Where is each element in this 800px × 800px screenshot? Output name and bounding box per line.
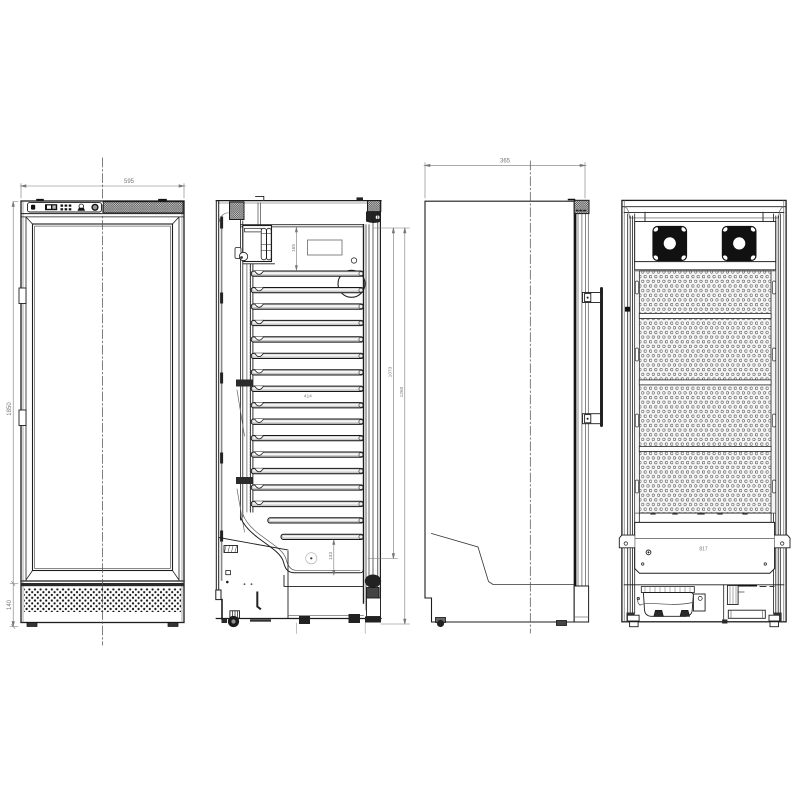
svg-text:414: 414 bbox=[304, 394, 312, 400]
svg-text:595: 595 bbox=[124, 179, 135, 185]
svg-text:817: 817 bbox=[699, 547, 708, 553]
svg-text:1073: 1073 bbox=[387, 366, 393, 377]
svg-text:133: 133 bbox=[328, 552, 334, 560]
svg-text:165: 165 bbox=[291, 244, 297, 252]
svg-text:1850: 1850 bbox=[7, 402, 13, 416]
svg-text:140: 140 bbox=[7, 599, 13, 610]
svg-text:1260: 1260 bbox=[399, 386, 405, 397]
svg-text:365: 365 bbox=[500, 159, 511, 165]
